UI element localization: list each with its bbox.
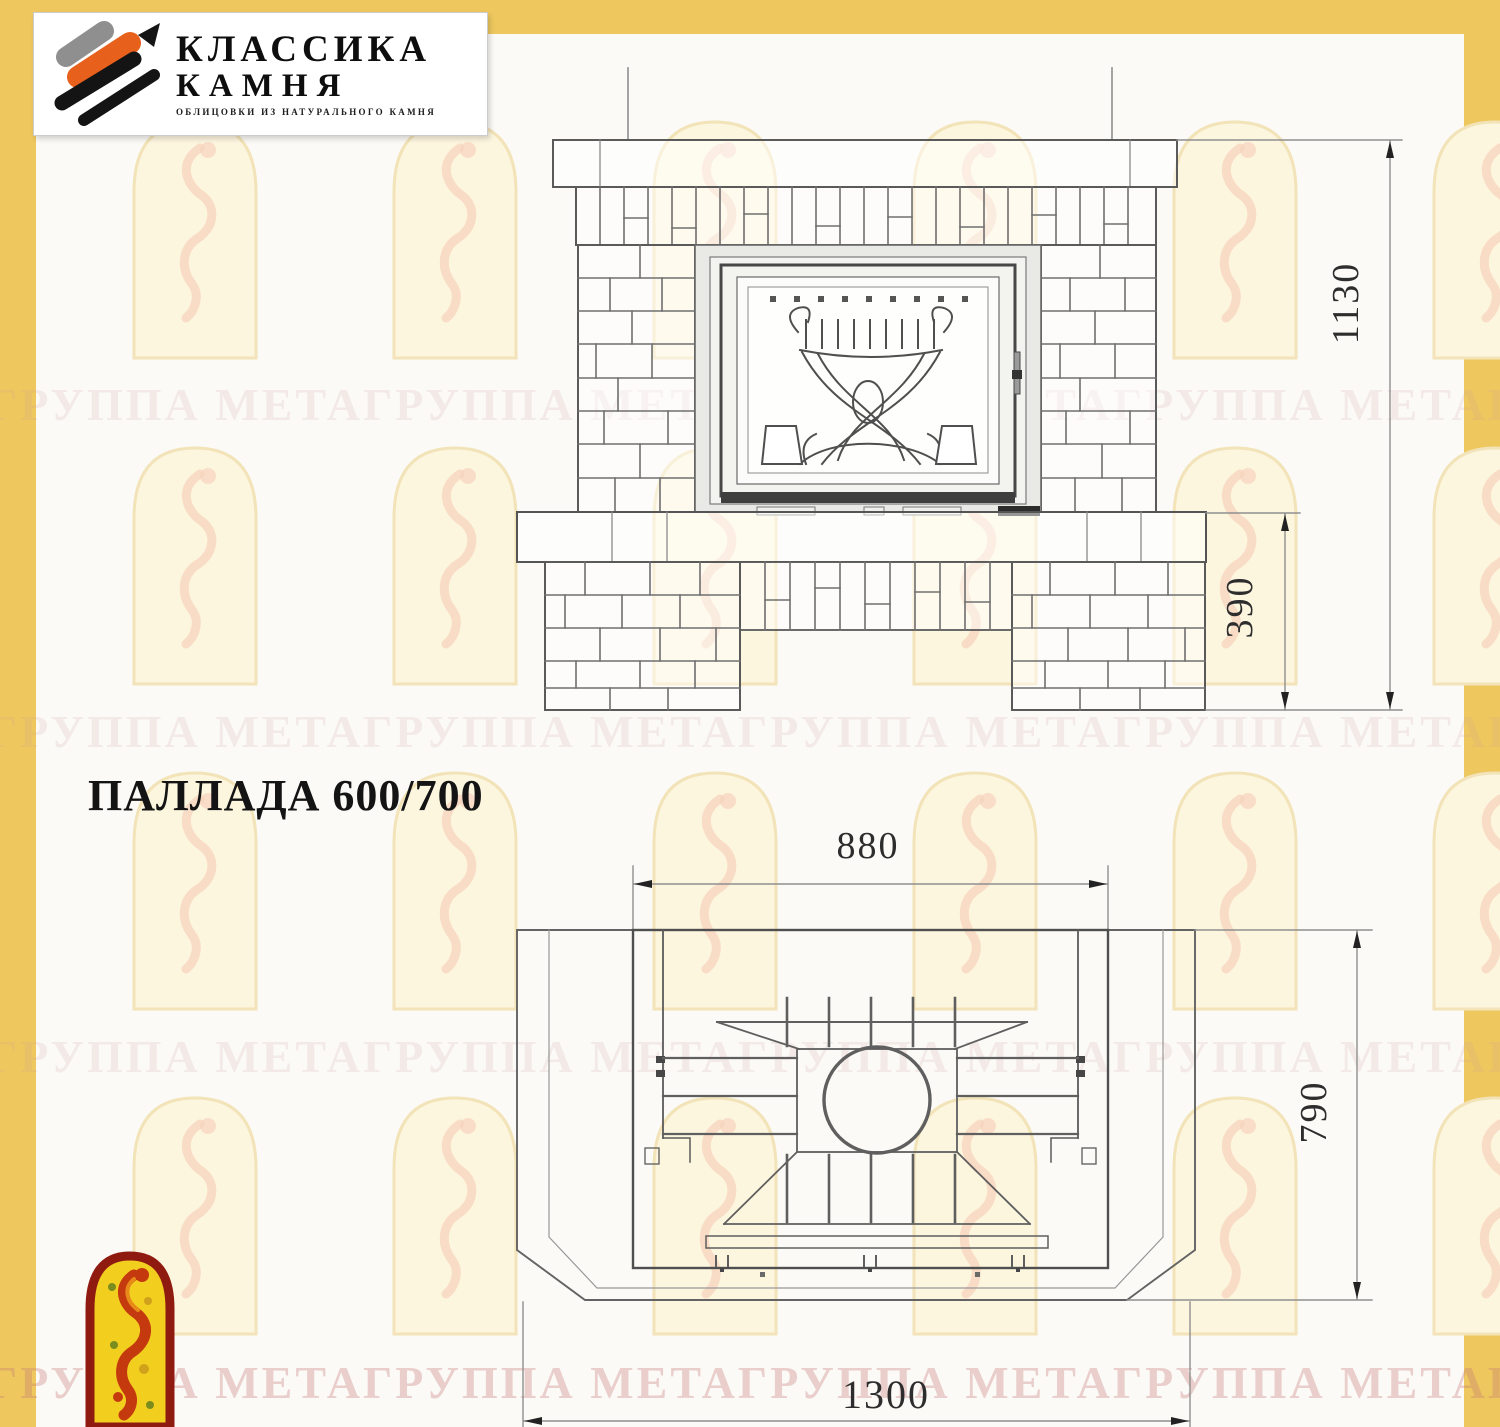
- right-plinth: [1012, 562, 1205, 710]
- dim-label-390: 390: [1219, 576, 1261, 639]
- technical-drawing: 1130 390 880: [0, 0, 1500, 1427]
- plan-firebox-insert: [663, 998, 1078, 1277]
- company-logo-text: КЛАССИКА КАМНЯ ОБЛИЦОВКИ ИЗ НАТУРАЛЬНОГО…: [176, 31, 436, 117]
- company-tagline: ОБЛИЦОВКИ ИЗ НАТУРАЛЬНОГО КАМНЯ: [176, 107, 436, 117]
- front-view-drawing: 1130 390: [517, 68, 1402, 710]
- plan-inner-outline: [549, 930, 1163, 1288]
- page-title: ПАЛЛАДА 600/700: [88, 770, 484, 821]
- flue-collar-circle: [824, 1047, 930, 1153]
- left-brick-pier: [578, 245, 695, 512]
- company-name-line2: КАМНЯ: [176, 69, 436, 104]
- dim-label-790: 790: [1293, 1081, 1335, 1144]
- vent-dots: [770, 296, 968, 302]
- plan-outer-outline: [517, 930, 1195, 1300]
- dim-label-1300: 1300: [842, 1372, 930, 1417]
- dimension-body-width: 880: [633, 825, 1108, 932]
- dimension-base-height: 390: [1206, 513, 1300, 710]
- dim-label-880: 880: [837, 825, 900, 867]
- upper-brick-frieze: [576, 187, 1156, 245]
- flue-extension-lines: [628, 68, 1112, 140]
- stone-strokes-icon: [42, 21, 166, 127]
- wall-bracket-marks: [656, 1056, 1085, 1077]
- plan-view-drawing: 880: [517, 825, 1372, 1427]
- dimension-total-height: 1130: [1177, 140, 1402, 710]
- right-brick-pier: [1041, 245, 1156, 512]
- meta-arch-logo: [84, 1247, 176, 1427]
- lower-brick-frieze: [740, 562, 1012, 630]
- dimension-total-width: 1300: [523, 1302, 1190, 1427]
- catalog-page: ГРУППА МЕТАГРУППА МЕТАГРУППА МЕТАГРУППА …: [0, 0, 1500, 1427]
- company-logo: КЛАССИКА КАМНЯ ОБЛИЦОВКИ ИЗ НАТУРАЛЬНОГО…: [33, 12, 488, 136]
- hearth-shelf: [517, 512, 1206, 562]
- left-plinth: [545, 562, 740, 710]
- firebox-insert: [695, 245, 1041, 516]
- mantel-shelf: [553, 140, 1177, 187]
- dim-label-1130: 1130: [1325, 262, 1367, 345]
- dimension-depth: 790: [1127, 930, 1372, 1300]
- ash-pan-bar: [721, 492, 1015, 503]
- company-name-line1: КЛАССИКА: [176, 31, 436, 69]
